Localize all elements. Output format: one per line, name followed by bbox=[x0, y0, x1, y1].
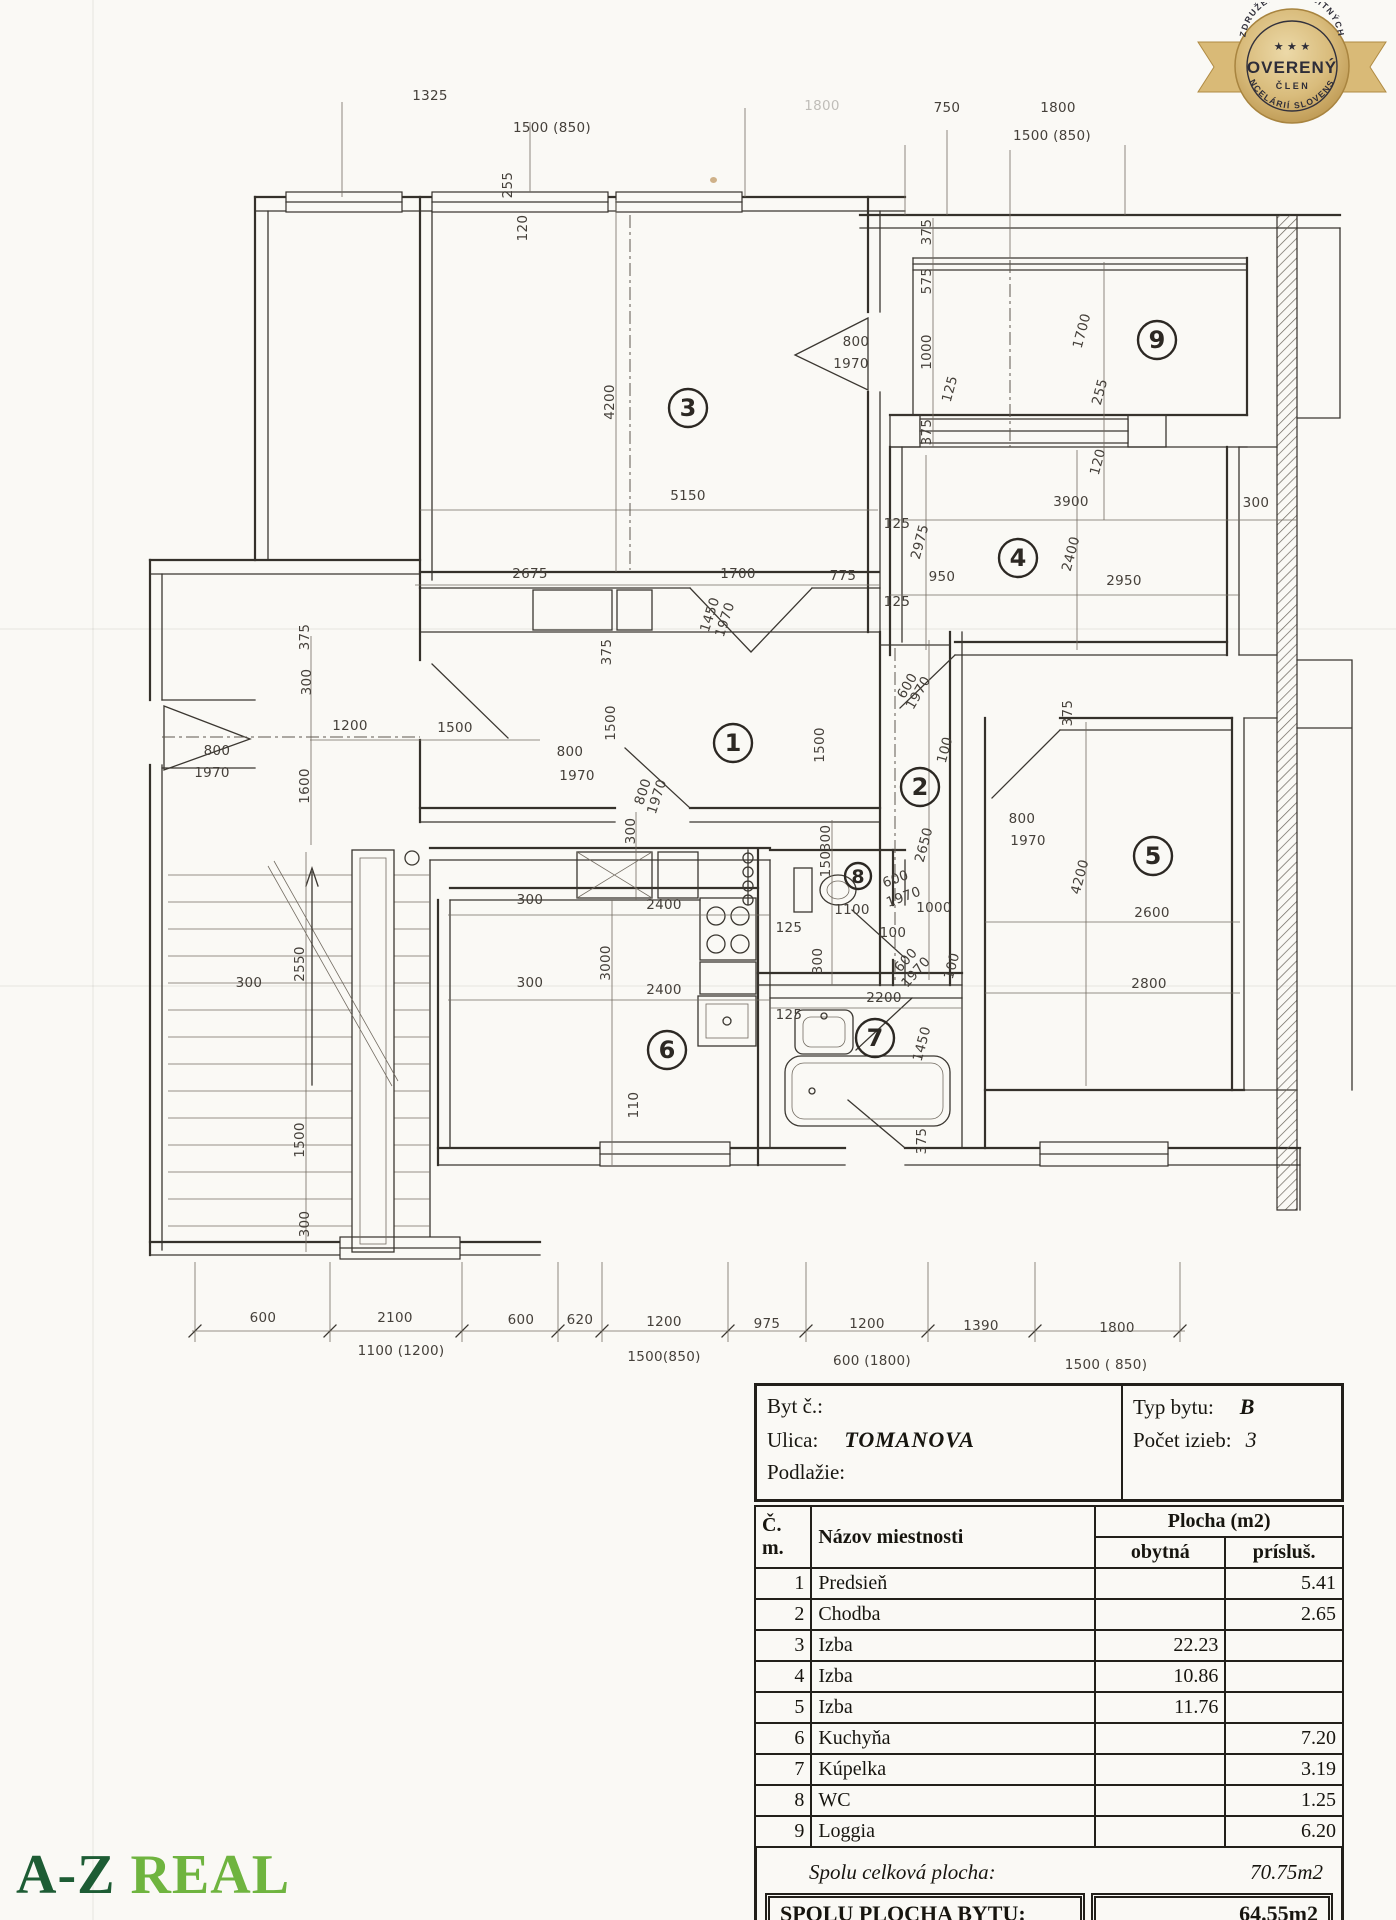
dimension-label: 1500 bbox=[603, 705, 619, 741]
col-header-obytna: obytná bbox=[1095, 1537, 1225, 1568]
bath-sink bbox=[795, 1010, 853, 1054]
dimension-label: 1800 bbox=[1040, 100, 1076, 116]
ulica-value: TOMANOVA bbox=[844, 1427, 975, 1453]
dimension-label: 1100 (1200) bbox=[358, 1343, 445, 1359]
badge-subtitle: ČLEN bbox=[1276, 80, 1311, 91]
dimension-label: 4200 bbox=[1068, 858, 1093, 896]
obytna-value-cell bbox=[1095, 1816, 1225, 1847]
dimension-label: 800 bbox=[1009, 811, 1036, 827]
dimension-label: 1000 bbox=[919, 334, 935, 370]
staircase bbox=[168, 850, 430, 1252]
apartment-info-table: Byt č.: Ulica: TOMANOVA Podlažie: Typ by… bbox=[754, 1383, 1344, 1920]
dimension-label: 800 bbox=[557, 744, 584, 760]
dimension-label: 120 bbox=[515, 215, 531, 242]
dimension-label: 2200 bbox=[866, 990, 902, 1006]
dimension-label: 125 bbox=[776, 920, 803, 936]
room-name-cell: WC bbox=[811, 1785, 1095, 1816]
room-number: 1 bbox=[725, 729, 742, 757]
prislus-value-cell: 3.19 bbox=[1225, 1754, 1343, 1785]
dimension-label: 2400 bbox=[646, 982, 682, 998]
room-number: 9 bbox=[1149, 326, 1166, 354]
logo-part-light: REAL bbox=[130, 1844, 290, 1906]
dimension-label: 1000 bbox=[916, 900, 952, 916]
dimension-label: 125 bbox=[884, 516, 911, 532]
dimension-label: 1200 bbox=[646, 1314, 682, 1330]
scanned-floorplan-page: { "badge": { "arc_top": "ZDRUŽENIE REALI… bbox=[0, 0, 1396, 1920]
obytna-value-cell bbox=[1095, 1568, 1225, 1599]
flat-area-value: 64.55m2 bbox=[1091, 1893, 1333, 1920]
room-name-cell: Kuchyňa bbox=[811, 1723, 1095, 1754]
room-index-cell: 2 bbox=[755, 1599, 811, 1630]
prislus-value-cell: 5.41 bbox=[1225, 1568, 1343, 1599]
obytna-value-cell bbox=[1095, 1754, 1225, 1785]
dimension-label: 300 bbox=[236, 975, 263, 991]
byt-label: Byt č.: bbox=[767, 1394, 823, 1419]
ulica-label: Ulica: bbox=[767, 1428, 818, 1453]
dimension-label: 1390 bbox=[963, 1318, 999, 1334]
dimension-label: 575 bbox=[919, 268, 935, 295]
dimension-label: 125 bbox=[884, 594, 911, 610]
total-area-value: 70.75m2 bbox=[1250, 1860, 1323, 1885]
typ-value: B bbox=[1240, 1394, 1256, 1420]
room-number: 7 bbox=[867, 1024, 884, 1052]
table-row: 1Predsieň5.41 bbox=[755, 1568, 1343, 1599]
room-number: 4 bbox=[1010, 544, 1027, 572]
dimension-label: 375 bbox=[599, 639, 615, 666]
room-name-cell: Chodba bbox=[811, 1599, 1095, 1630]
dimension-label: 1600 bbox=[297, 768, 313, 804]
plumbing-stack bbox=[743, 850, 753, 905]
dimension-label: 1500 bbox=[437, 720, 473, 736]
dimension-label: 750 bbox=[934, 100, 961, 116]
obytna-value-cell bbox=[1095, 1785, 1225, 1816]
dimension-label: 1200 bbox=[332, 718, 368, 734]
room-number: 5 bbox=[1145, 842, 1162, 870]
room-areas-table: Č. m. Názov miestnosti Plocha (m2) obytn… bbox=[754, 1505, 1344, 1848]
room-name-cell: Predsieň bbox=[811, 1568, 1095, 1599]
dimension-label: 600 (1800) bbox=[833, 1353, 911, 1369]
dimension-label: 100 bbox=[934, 735, 956, 765]
dimension-label: 800 bbox=[843, 334, 870, 350]
dimension-label: 375 bbox=[919, 419, 935, 446]
table-row: 6Kuchyňa7.20 bbox=[755, 1723, 1343, 1754]
room-name-cell: Izba bbox=[811, 1661, 1095, 1692]
dimension-label: 775 bbox=[830, 568, 857, 584]
dimension-label: 1500(850) bbox=[627, 1349, 700, 1365]
company-logo: A-Z REAL bbox=[16, 1843, 290, 1907]
dimension-label: 1325 bbox=[412, 88, 448, 104]
dimension-label: 100 bbox=[941, 951, 963, 981]
room-index-cell: 5 bbox=[755, 1692, 811, 1723]
dimension-label: 2100 bbox=[377, 1310, 413, 1326]
dimension-label: 1800 bbox=[804, 98, 840, 114]
dimension-label: 125 bbox=[939, 374, 961, 404]
dimension-label: 300 bbox=[623, 818, 639, 845]
room-name-cell: Kúpelka bbox=[811, 1754, 1095, 1785]
typ-label: Typ bytu: bbox=[1133, 1395, 1214, 1420]
dimension-label: 300 bbox=[297, 1211, 313, 1238]
dimension-label: 375 bbox=[297, 624, 313, 651]
dimension-label: 2975 bbox=[908, 523, 933, 561]
col-header-nazov: Názov miestnosti bbox=[811, 1506, 1095, 1568]
info-box: Byt č.: Ulica: TOMANOVA Podlažie: Typ by… bbox=[754, 1383, 1344, 1502]
obytna-value-cell bbox=[1095, 1723, 1225, 1754]
dimension-label: 3000 bbox=[598, 945, 614, 981]
dimension-label: 1450 bbox=[910, 1025, 935, 1063]
room-number: 3 bbox=[680, 394, 697, 422]
prislus-value-cell: 7.20 bbox=[1225, 1723, 1343, 1754]
dimension-label: 375 bbox=[1060, 700, 1076, 727]
col-header-cm: Č. m. bbox=[755, 1506, 811, 1568]
room-index-cell: 4 bbox=[755, 1661, 811, 1692]
room-name-cell: Izba bbox=[811, 1692, 1095, 1723]
obytna-value-cell bbox=[1095, 1599, 1225, 1630]
room-index-cell: 7 bbox=[755, 1754, 811, 1785]
col-header-prislus: prísluš. bbox=[1225, 1537, 1343, 1568]
obytna-value-cell: 22.23 bbox=[1095, 1630, 1225, 1661]
room-number: 8 bbox=[851, 866, 864, 888]
dimension-label: 300 bbox=[818, 825, 834, 852]
badge-title: OVERENÝ bbox=[1247, 58, 1337, 77]
pocet-value: 3 bbox=[1246, 1427, 1257, 1453]
room-index-cell: 3 bbox=[755, 1630, 811, 1661]
prislus-value-cell: 1.25 bbox=[1225, 1785, 1343, 1816]
room-name-cell: Izba bbox=[811, 1630, 1095, 1661]
dimension-label: 1200 bbox=[849, 1316, 885, 1332]
dimension-label: 255 bbox=[500, 172, 516, 199]
dimension-label: 600 bbox=[508, 1312, 535, 1328]
dimension-label: 800 bbox=[204, 743, 231, 759]
room-number: 2 bbox=[912, 773, 929, 801]
room-name-cell: Loggia bbox=[811, 1816, 1095, 1847]
table-row: 4Izba10.86 bbox=[755, 1661, 1343, 1692]
dimension-label: 2600 bbox=[1134, 905, 1170, 921]
dimension-label: 120 bbox=[1087, 447, 1109, 477]
dimension-label: 2950 bbox=[1106, 573, 1142, 589]
dimension-label: 1970 bbox=[194, 765, 230, 781]
dimension-label: 2400 bbox=[646, 897, 682, 913]
dimension-label: 1970 bbox=[833, 356, 869, 372]
dimension-label: 1500 (850) bbox=[1013, 128, 1091, 144]
prislus-value-cell bbox=[1225, 1692, 1343, 1723]
pocet-label: Počet izieb: bbox=[1133, 1428, 1232, 1453]
dimension-label: 5150 bbox=[670, 488, 706, 504]
obytna-value-cell: 10.86 bbox=[1095, 1661, 1225, 1692]
dimension-label: 1100 bbox=[834, 902, 870, 918]
dimension-label: 150 bbox=[818, 851, 834, 878]
dimension-label: 300 bbox=[299, 669, 315, 696]
totals-section: Spolu celková plocha: 70.75m2 SPOLU PLOC… bbox=[754, 1848, 1344, 1920]
dimension-label: 255 bbox=[1089, 377, 1111, 407]
prislus-value-cell bbox=[1225, 1630, 1343, 1661]
dimension-label: 1800 bbox=[1099, 1320, 1135, 1336]
prislus-value-cell bbox=[1225, 1661, 1343, 1692]
dimension-label: 1500 bbox=[812, 727, 828, 763]
room-index-cell: 9 bbox=[755, 1816, 811, 1847]
dimension-label: 620 bbox=[567, 1312, 594, 1328]
room-number: 6 bbox=[659, 1036, 676, 1064]
dimension-label: 3900 bbox=[1053, 494, 1089, 510]
dimension-label: 1700 bbox=[1070, 312, 1095, 350]
dimension-label: 2550 bbox=[292, 946, 308, 982]
podlazie-label: Podlažie: bbox=[767, 1460, 845, 1485]
dimension-label: 1500 bbox=[292, 1122, 308, 1158]
dimension-label: 125 bbox=[776, 1007, 803, 1023]
dimension-label: 2650 bbox=[912, 826, 937, 864]
dimension-label: 2675 bbox=[512, 566, 548, 582]
prislus-value-cell: 6.20 bbox=[1225, 1816, 1343, 1847]
room-index-cell: 6 bbox=[755, 1723, 811, 1754]
stove bbox=[700, 898, 756, 960]
table-row: 7Kúpelka3.19 bbox=[755, 1754, 1343, 1785]
obytna-value-cell: 11.76 bbox=[1095, 1692, 1225, 1723]
dimension-label: 1500 (850) bbox=[513, 120, 591, 136]
flat-area-label: SPOLU PLOCHA BYTU: bbox=[765, 1893, 1085, 1920]
prislus-value-cell: 2.65 bbox=[1225, 1599, 1343, 1630]
dimension-label: 1500 ( 850) bbox=[1065, 1357, 1148, 1373]
dimension-label: 600 bbox=[250, 1310, 277, 1326]
col-header-plocha: Plocha (m2) bbox=[1095, 1506, 1343, 1537]
table-row: 9Loggia6.20 bbox=[755, 1816, 1343, 1847]
kitchen-sink bbox=[698, 996, 756, 1046]
table-row: 5Izba11.76 bbox=[755, 1692, 1343, 1723]
walls bbox=[150, 197, 1352, 1255]
dimension-label: 300 bbox=[810, 948, 826, 975]
dimension-label: 2800 bbox=[1131, 976, 1167, 992]
dimension-label: 975 bbox=[754, 1316, 781, 1332]
dimension-label: 1700 bbox=[720, 566, 756, 582]
table-row: 3Izba22.23 bbox=[755, 1630, 1343, 1661]
dimension-label: 1970 bbox=[559, 768, 595, 784]
dimension-label: 4200 bbox=[602, 384, 618, 420]
dimension-label: 375 bbox=[919, 219, 935, 246]
dimension-label: 300 bbox=[517, 892, 544, 908]
dimension-label: 300 bbox=[517, 975, 544, 991]
dimension-label: 2400 bbox=[1059, 535, 1084, 573]
dimension-label: 100 bbox=[880, 925, 907, 941]
dimension-label: 375 bbox=[914, 1128, 930, 1155]
table-row: 2Chodba2.65 bbox=[755, 1599, 1343, 1630]
dimension-label: 1970 bbox=[1010, 833, 1046, 849]
dimension-label: 300 bbox=[1243, 495, 1270, 511]
room-index-cell: 8 bbox=[755, 1785, 811, 1816]
dimension-label: 950 bbox=[929, 569, 956, 585]
logo-part-dark: A-Z bbox=[16, 1844, 115, 1906]
total-area-label: Spolu celková plocha: bbox=[809, 1860, 996, 1885]
dimension-label: 110 bbox=[626, 1092, 642, 1119]
room-index-cell: 1 bbox=[755, 1568, 811, 1599]
badge-stars: ★ ★ ★ bbox=[1274, 40, 1311, 53]
certified-badge: ZDRUŽENIE REALITNÝCH KANCELÁRIÍ SLOVENSK… bbox=[1186, 2, 1396, 138]
bathtub bbox=[785, 1056, 950, 1126]
table-row: 8WC1.25 bbox=[755, 1785, 1343, 1816]
